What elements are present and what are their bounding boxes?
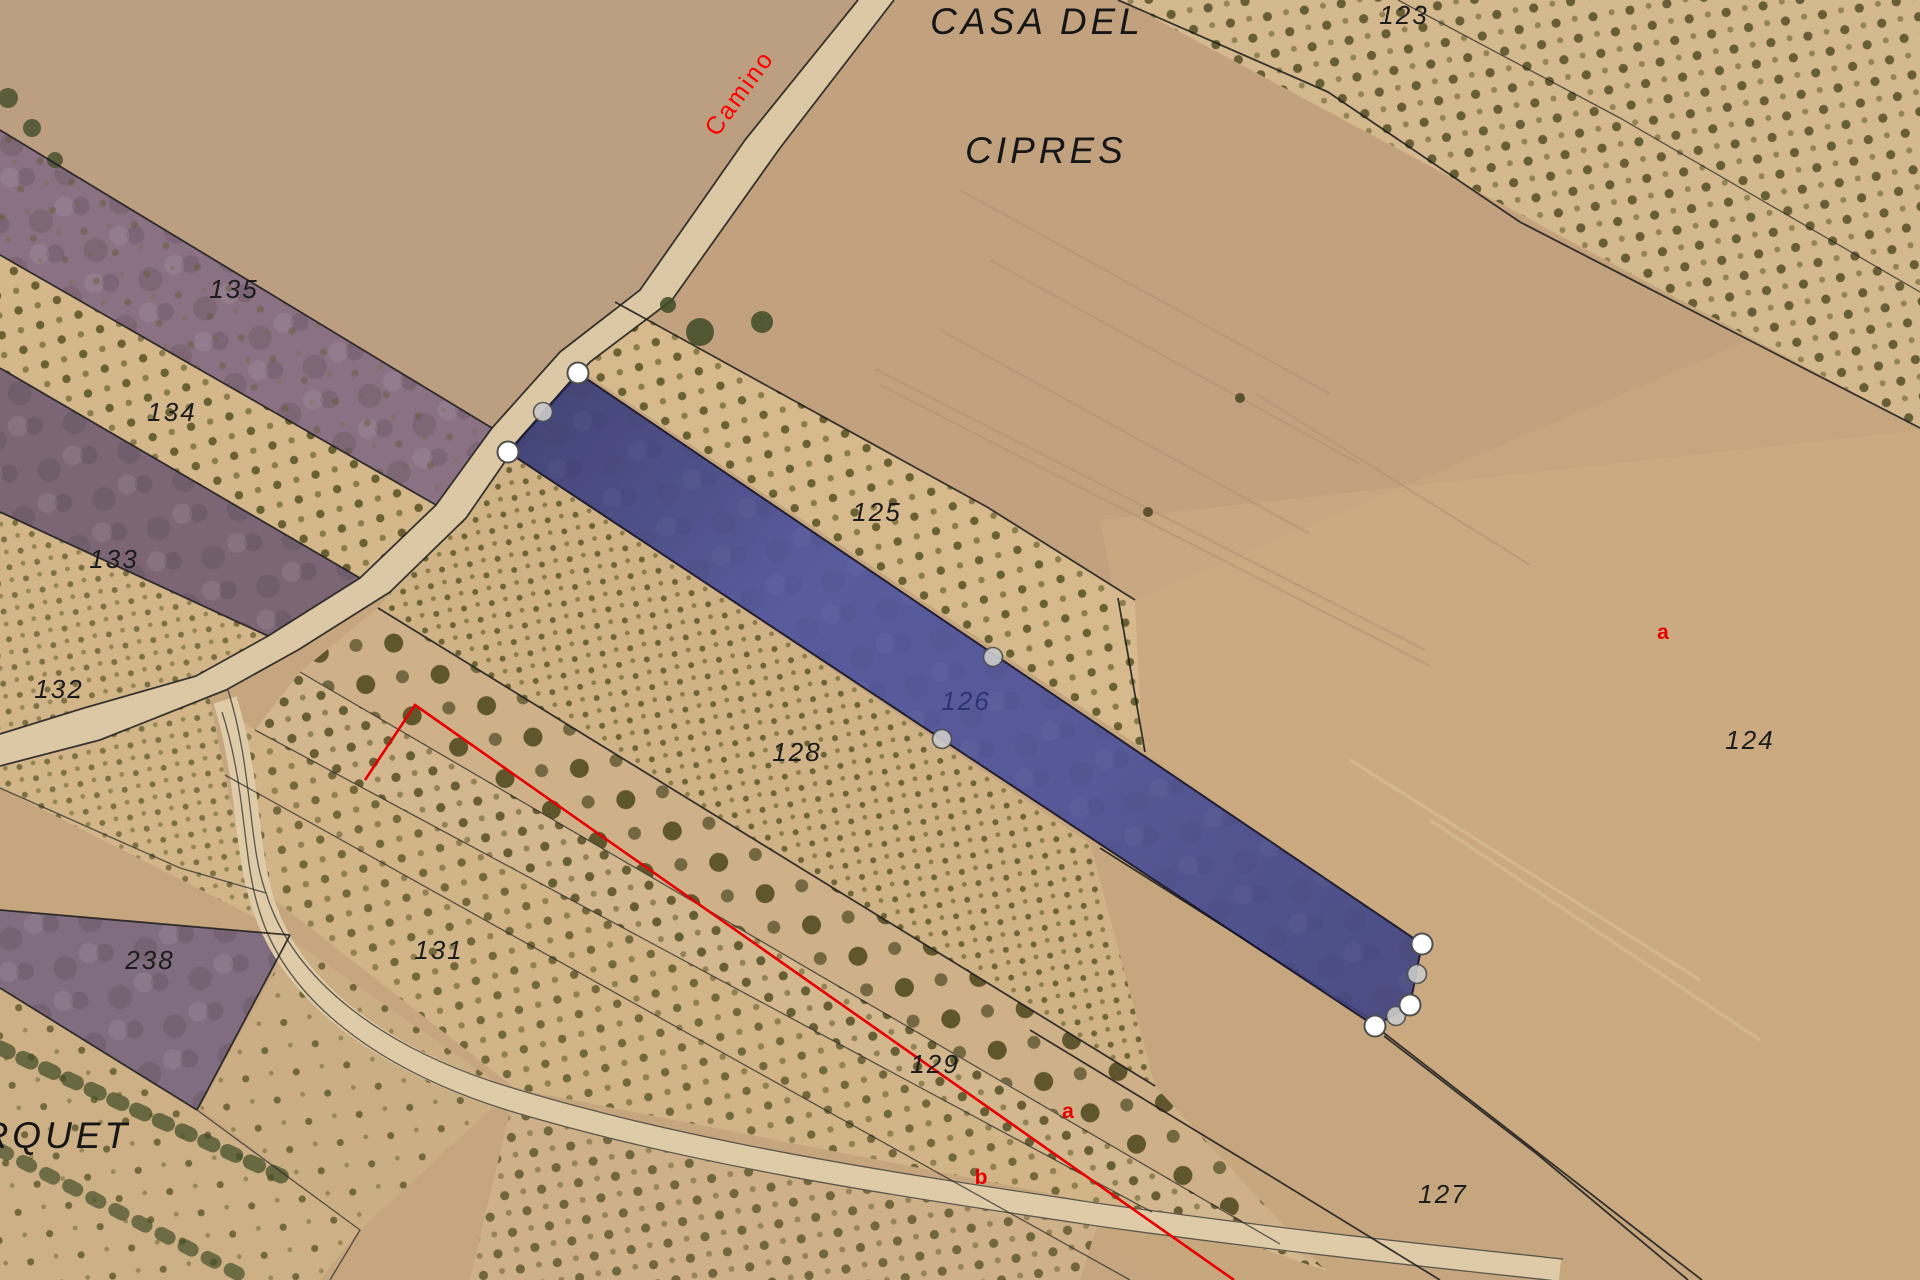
parcel-label-129: 129 (910, 1049, 959, 1079)
parcel-label-134: 134 (147, 397, 196, 427)
place-label-arquet: ARQUET (0, 1115, 131, 1156)
parcel-label-238: 238 (124, 945, 174, 975)
vertex-handle-0[interactable] (568, 363, 589, 384)
parcel-label-125: 125 (852, 497, 901, 527)
vertex-handle-2[interactable] (1412, 934, 1433, 955)
vertex-handle-3[interactable] (1400, 995, 1421, 1016)
place-label-casa-del: CASA DEL (930, 1, 1144, 42)
cadastral-map-viewport: CASA DELCIPRESARQUET12313513413313212512… (0, 0, 1920, 1280)
vertex-handle-1[interactable] (498, 442, 519, 463)
cadastral-map: CASA DELCIPRESARQUET12313513413313212512… (0, 0, 1920, 1280)
parcel-label-131: 131 (414, 935, 463, 965)
midpoint-handle-1[interactable] (984, 648, 1003, 667)
subparcel-label-a-0: a (1657, 621, 1669, 644)
parcel-label-126: 126 (941, 686, 990, 716)
parcel-label-124: 124 (1725, 725, 1774, 755)
parcel-label-132: 132 (34, 674, 83, 704)
midpoint-handle-0[interactable] (534, 403, 553, 422)
subparcel-label-b-2: b (975, 1166, 988, 1189)
place-label-cipres: CIPRES (965, 130, 1127, 171)
subparcel-label-a-1: a (1062, 1100, 1074, 1123)
parcel-label-123: 123 (1379, 0, 1428, 30)
midpoint-handle-3[interactable] (1408, 965, 1427, 984)
parcel-label-127: 127 (1418, 1179, 1467, 1209)
vertex-handle-4[interactable] (1365, 1016, 1386, 1037)
parcel-label-133: 133 (89, 544, 138, 574)
parcel-label-135: 135 (209, 274, 258, 304)
midpoint-handle-2[interactable] (933, 730, 952, 749)
parcel-label-128: 128 (772, 737, 821, 767)
